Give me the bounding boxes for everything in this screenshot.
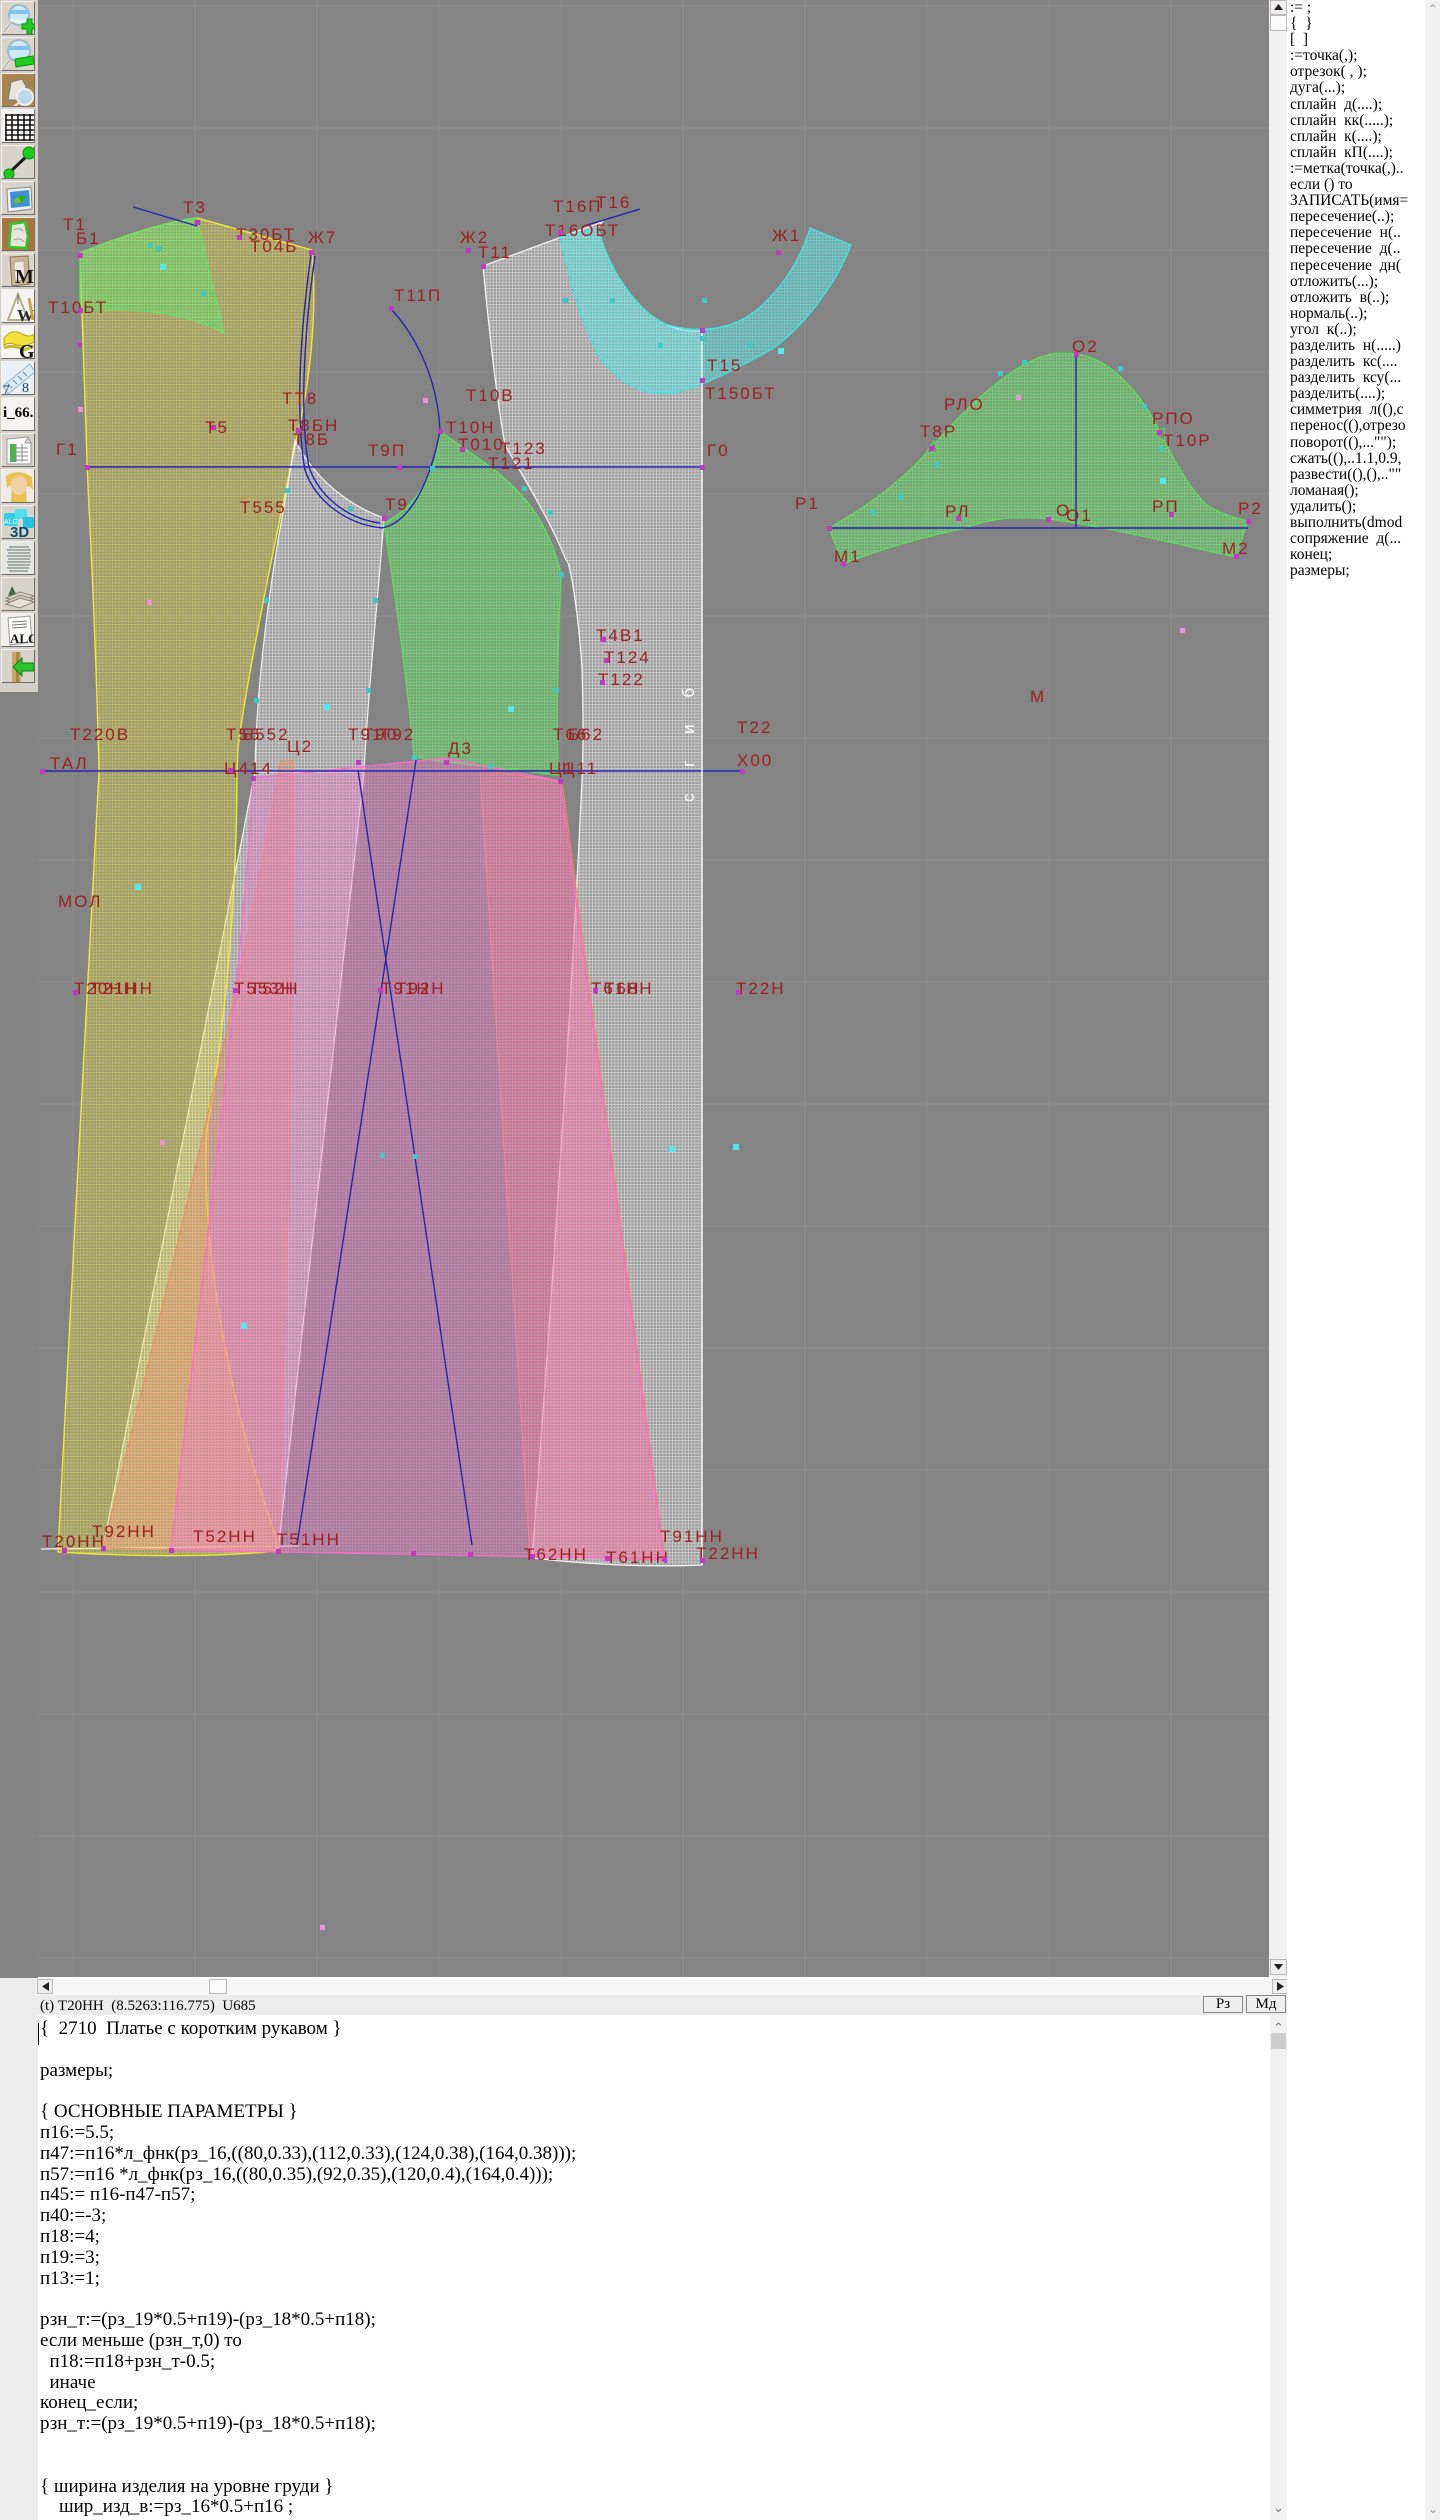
svg-text:с г и б: с г и б (679, 677, 698, 802)
svg-text:Д3: Д3 (448, 739, 473, 758)
svg-text:Т124: Т124 (604, 648, 651, 667)
svg-text:Ж1: Ж1 (772, 226, 801, 245)
svg-text:Т04Б: Т04Б (250, 237, 298, 256)
svg-text:Т5: Т5 (205, 418, 229, 437)
svg-text:Т9П: Т9П (368, 441, 406, 460)
svg-text:Т555: Т555 (240, 498, 287, 517)
svg-text:Т22Н: Т22Н (736, 979, 786, 998)
svg-text:Т9: Т9 (385, 495, 409, 514)
svg-text:Ц2: Ц2 (287, 737, 313, 756)
svg-text:7: 7 (3, 382, 10, 395)
svg-text:Т16ОБТ: Т16ОБТ (545, 221, 620, 240)
svg-text:Т22: Т22 (737, 718, 772, 737)
svg-text:Т22НН: Т22НН (696, 1544, 760, 1563)
svg-text:РПО: РПО (1152, 409, 1195, 428)
svg-text:ALG: ALG (4, 519, 18, 526)
svg-text:Т3: Т3 (183, 198, 207, 217)
svg-text:Т4В1: Т4В1 (596, 626, 645, 645)
svg-text:Г1: Г1 (56, 440, 79, 459)
svg-text:Т16: Т16 (596, 193, 631, 212)
svg-text:М1: М1 (834, 547, 862, 566)
svg-text:Т10БТ: Т10БТ (48, 298, 108, 317)
svg-text:ТАЛ: ТАЛ (50, 754, 89, 773)
svg-text:Т220В: Т220В (70, 725, 130, 744)
svg-text:G: G (19, 341, 35, 359)
svg-text:Т122: Т122 (598, 670, 645, 689)
svg-text:3D: 3D (10, 524, 29, 539)
svg-text:Т52НН: Т52НН (193, 1527, 257, 1546)
svg-text:8: 8 (22, 381, 29, 395)
svg-text:Т92: Т92 (380, 725, 415, 744)
svg-text:Ц11: Ц11 (562, 759, 598, 778)
svg-text:Т11: Т11 (478, 243, 512, 262)
svg-text:М: М (1030, 687, 1046, 706)
svg-text:Б1: Б1 (76, 229, 101, 248)
svg-text:Х00: Х00 (737, 751, 773, 770)
svg-text:Т51НН: Т51НН (277, 1530, 341, 1549)
svg-text:Б62: Б62 (568, 725, 604, 744)
svg-text:Г0: Г0 (707, 441, 730, 460)
svg-text:Т15: Т15 (707, 356, 742, 375)
svg-text:Т52Н: Т52Н (250, 979, 300, 998)
svg-text:Т10Р: Т10Р (1163, 431, 1212, 450)
svg-text:Т010: Т010 (458, 435, 505, 454)
svg-text:Т11П: Т11П (394, 286, 442, 305)
svg-text:ALG: ALG (10, 631, 35, 646)
svg-text:О1: О1 (1066, 506, 1093, 525)
svg-text:Т92Н: Т92Н (396, 979, 446, 998)
svg-text:Р1: Р1 (795, 494, 820, 513)
svg-text:M: M (15, 266, 34, 287)
svg-text:ТТ8: ТТ8 (282, 389, 318, 408)
svg-text:Т121: Т121 (488, 454, 535, 473)
svg-text:Т21НН: Т21НН (90, 979, 154, 998)
svg-text:Ж7: Ж7 (308, 228, 337, 247)
svg-text:Р2: Р2 (1238, 499, 1263, 518)
svg-text:Т150БТ: Т150БТ (705, 384, 777, 403)
svg-text:Б552: Б552 (242, 725, 290, 744)
svg-text:РП: РП (1152, 497, 1180, 516)
svg-text:РЛО: РЛО (944, 395, 985, 414)
svg-text:Т8Р: Т8Р (920, 422, 957, 441)
svg-text:Т10В: Т10В (466, 386, 515, 405)
svg-text:Т68Н: Т68Н (604, 979, 654, 998)
svg-text:МОЛ: МОЛ (58, 892, 102, 911)
svg-text:Т92НН: Т92НН (92, 1522, 156, 1541)
svg-text:Т61НН: Т61НН (606, 1548, 670, 1567)
